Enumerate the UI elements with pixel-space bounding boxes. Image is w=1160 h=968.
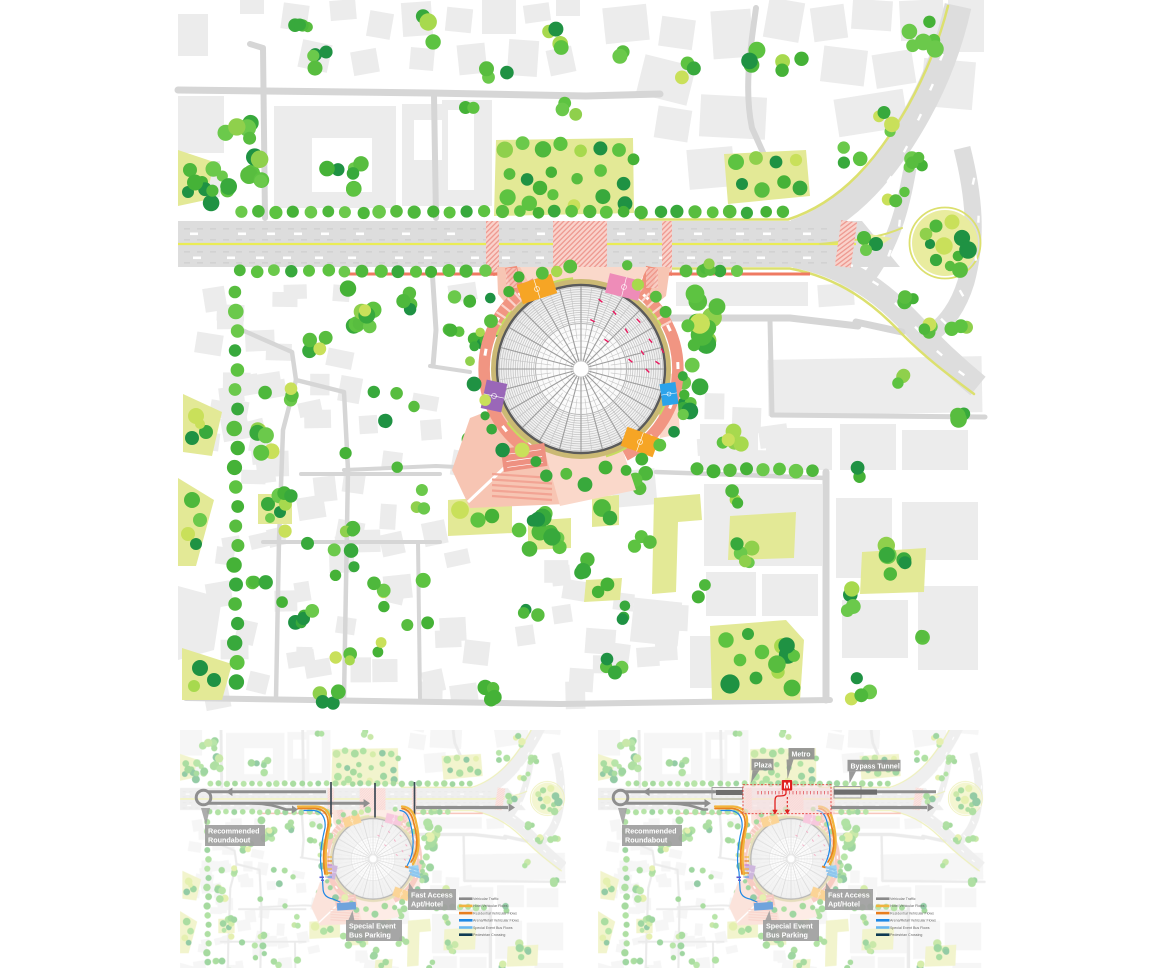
- svg-text:Arena/Retail Vehicular Flows: Arena/Retail Vehicular Flows: [473, 919, 519, 923]
- svg-text:Arena/Retail Vehicular Flows: Arena/Retail Vehicular Flows: [890, 919, 936, 923]
- svg-text:Hotel Vehicular Flows: Hotel Vehicular Flows: [890, 904, 925, 908]
- svg-text:Bypass Tunnel: Bypass Tunnel: [851, 763, 900, 770]
- svg-text:Recommended: Recommended: [625, 827, 677, 836]
- svg-text:Fast Access: Fast Access: [828, 891, 870, 900]
- svg-text:Pedestrian Crossing: Pedestrian Crossing: [890, 933, 922, 937]
- svg-text:Bus Parking: Bus Parking: [766, 931, 808, 940]
- svg-text:Residential Vehicular Flows: Residential Vehicular Flows: [473, 911, 517, 915]
- svg-text:Metro: Metro: [792, 752, 811, 759]
- svg-text:Vehicular Traffic: Vehicular Traffic: [890, 897, 916, 901]
- svg-text:Special Event Bus Flows: Special Event Bus Flows: [890, 926, 930, 930]
- svg-text:Special Event: Special Event: [349, 922, 396, 931]
- svg-text:Apt/Hotel: Apt/Hotel: [411, 900, 443, 909]
- svg-text:Bus Parking: Bus Parking: [349, 931, 391, 940]
- svg-text:Plaza: Plaza: [754, 762, 772, 769]
- svg-text:Roundabout: Roundabout: [208, 836, 251, 845]
- svg-text:Special Event: Special Event: [766, 922, 813, 931]
- svg-text:Residential Vehicular Flows: Residential Vehicular Flows: [890, 911, 934, 915]
- svg-text:Recommended: Recommended: [208, 827, 260, 836]
- svg-text:Pedestrian Crossing: Pedestrian Crossing: [473, 933, 505, 937]
- svg-text:Fast Access: Fast Access: [411, 891, 453, 900]
- svg-text:Special Event Bus Flows: Special Event Bus Flows: [473, 926, 513, 930]
- svg-text:M: M: [783, 780, 790, 790]
- svg-text:Vehicular Traffic: Vehicular Traffic: [473, 897, 499, 901]
- svg-text:Roundabout: Roundabout: [625, 836, 668, 845]
- svg-text:Apt/Hotel: Apt/Hotel: [828, 900, 860, 909]
- svg-text:Hotel Vehicular Flows: Hotel Vehicular Flows: [473, 904, 508, 908]
